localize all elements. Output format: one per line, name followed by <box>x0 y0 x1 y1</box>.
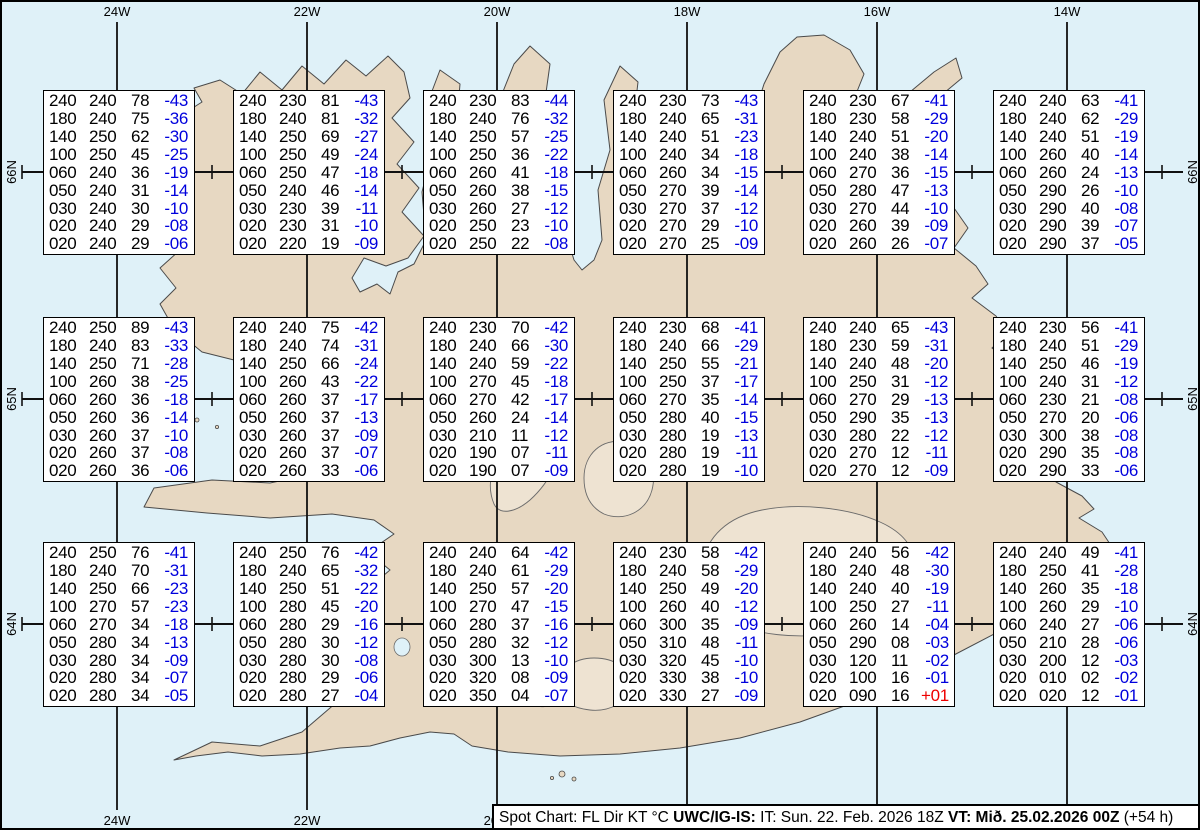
spot-cell-fl: 140 <box>619 580 659 598</box>
spot-cell-fl: 050 <box>809 409 849 427</box>
spot-cell-temp: -09 <box>921 462 948 480</box>
spot-row: 03032045-10 <box>619 651 758 669</box>
spot-cell-fl: 180 <box>429 562 469 580</box>
lake-thingvallavatn <box>394 638 410 656</box>
spot-cell-fl: 240 <box>999 92 1039 110</box>
spot-cell-fl: 060 <box>619 616 659 634</box>
spot-cell-fl: 140 <box>999 580 1039 598</box>
spot-cell-dir: 230 <box>849 110 891 128</box>
spot-box: 24024075-4218024074-3114025066-241002604… <box>233 317 385 482</box>
spot-cell-temp: -41 <box>1111 92 1138 110</box>
lat-label-left: 65N <box>5 387 19 411</box>
spot-cell-temp: -11 <box>731 444 758 462</box>
spot-cell-dir: 280 <box>279 687 321 705</box>
spot-cell-kt: 62 <box>131 128 161 146</box>
spot-cell-fl: 060 <box>49 616 89 634</box>
spot-cell-fl: 030 <box>49 427 89 445</box>
spot-cell-dir: 260 <box>1039 164 1081 182</box>
spot-cell-kt: 68 <box>701 319 731 337</box>
spot-cell-dir: 330 <box>659 669 701 687</box>
spot-cell-fl: 100 <box>239 598 279 616</box>
spot-cell-fl: 180 <box>809 562 849 580</box>
spot-cell-temp: -12 <box>731 598 758 616</box>
spot-cell-fl: 030 <box>49 652 89 670</box>
spot-cell-fl: 020 <box>239 687 279 705</box>
spot-cell-fl: 100 <box>619 146 659 164</box>
spot-box: 24023081-4318024081-3214025069-271002504… <box>233 90 385 255</box>
spot-cell-kt: 29 <box>131 217 161 235</box>
spot-cell-dir: 260 <box>279 373 321 391</box>
spot-cell-kt: 36 <box>131 391 161 409</box>
spot-cell-dir: 240 <box>89 337 131 355</box>
spot-cell-temp: -16 <box>541 616 568 634</box>
spot-cell-dir: 010 <box>1039 669 1081 687</box>
spot-row: 10026040-12 <box>619 598 758 616</box>
spot-cell-kt: 19 <box>321 235 351 253</box>
spot-cell-kt: 40 <box>1081 200 1111 218</box>
spot-cell-kt: 35 <box>1081 444 1111 462</box>
spot-cell-kt: 12 <box>891 444 921 462</box>
spot-cell-kt: 49 <box>1081 544 1111 562</box>
spot-cell-fl: 030 <box>999 200 1039 218</box>
spot-cell-dir: 290 <box>849 634 891 652</box>
spot-row: 14025051-22 <box>239 580 378 598</box>
spot-cell-dir: 270 <box>469 391 511 409</box>
spot-row: 02035004-07 <box>429 687 568 705</box>
spot-cell-kt: 08 <box>891 634 921 652</box>
spot-row: 18024074-31 <box>239 337 378 355</box>
spot-row: 05024046-14 <box>239 181 378 199</box>
spot-cell-fl: 180 <box>239 110 279 128</box>
spot-cell-fl: 240 <box>49 544 89 562</box>
spot-cell-temp: -14 <box>351 182 378 200</box>
spot-cell-dir: 260 <box>279 444 321 462</box>
spot-cell-kt: 12 <box>891 462 921 480</box>
spot-cell-fl: 180 <box>999 562 1039 580</box>
spot-cell-fl: 060 <box>429 164 469 182</box>
spot-cell-dir: 250 <box>849 598 891 616</box>
spot-row: 18024083-33 <box>49 337 188 355</box>
spot-row: 02029035-08 <box>999 444 1138 462</box>
spot-cell-fl: 140 <box>619 355 659 373</box>
spot-row: 14025046-19 <box>999 355 1138 373</box>
spot-cell-kt: 37 <box>321 391 351 409</box>
spot-cell-dir: 280 <box>279 616 321 634</box>
spot-cell-temp: -09 <box>541 669 568 687</box>
spot-cell-kt: 66 <box>701 337 731 355</box>
spot-cell-dir: 250 <box>469 146 511 164</box>
island <box>195 418 199 422</box>
spot-cell-fl: 050 <box>49 182 89 200</box>
spot-cell-dir: 260 <box>469 182 511 200</box>
spot-cell-fl: 030 <box>429 652 469 670</box>
spot-cell-temp: -02 <box>1111 669 1138 687</box>
spot-cell-kt: 43 <box>321 373 351 391</box>
spot-row: 10027057-23 <box>49 598 188 616</box>
lat-label-right: 66N <box>1186 160 1200 184</box>
spot-cell-temp: -42 <box>351 319 378 337</box>
spot-box: 24025089-4318024083-3314025071-281002603… <box>43 317 195 482</box>
spot-chart-page: 24W22W20W18W16W14W24W22W20W66N65N64N66N6… <box>0 0 1200 830</box>
spot-cell-dir: 240 <box>1039 544 1081 562</box>
spot-cell-fl: 140 <box>429 355 469 373</box>
spot-cell-kt: 65 <box>321 562 351 580</box>
spot-row: 18024051-29 <box>999 337 1138 355</box>
spot-cell-kt: 36 <box>131 164 161 182</box>
spot-row: 24024075-42 <box>239 319 378 337</box>
spot-cell-kt: 67 <box>891 92 921 110</box>
spot-cell-temp: -29 <box>1111 337 1138 355</box>
spot-cell-kt: 04 <box>511 687 541 705</box>
spot-cell-kt: 37 <box>701 373 731 391</box>
spot-cell-fl: 050 <box>809 634 849 652</box>
spot-cell-dir: 260 <box>89 427 131 445</box>
spot-row: 06027042-17 <box>429 391 568 409</box>
spot-row: 05026036-14 <box>49 408 188 426</box>
spot-cell-dir: 280 <box>279 598 321 616</box>
spot-row: 18024065-32 <box>239 562 378 580</box>
spot-cell-kt: 51 <box>1081 128 1111 146</box>
spot-cell-kt: 11 <box>891 652 921 670</box>
spot-box: 24023083-4418024076-3214025057-251002503… <box>423 90 575 255</box>
spot-cell-fl: 030 <box>239 427 279 445</box>
spot-cell-kt: 16 <box>891 687 921 705</box>
spot-cell-temp: -13 <box>1111 164 1138 182</box>
spot-cell-fl: 140 <box>239 580 279 598</box>
spot-row: 06028029-16 <box>239 616 378 634</box>
spot-cell-temp: -42 <box>541 544 568 562</box>
spot-cell-dir: 260 <box>469 164 511 182</box>
spot-row: 24023083-44 <box>429 92 568 110</box>
spot-cell-dir: 330 <box>659 687 701 705</box>
spot-cell-fl: 240 <box>239 544 279 562</box>
spot-cell-kt: 19 <box>701 462 731 480</box>
spot-cell-temp: -09 <box>541 462 568 480</box>
spot-cell-temp: -29 <box>1111 110 1138 128</box>
spot-box: 24024064-4218024061-2914025057-201002704… <box>423 542 575 707</box>
spot-row: 03020012-03 <box>999 651 1138 669</box>
spot-row: 18024066-30 <box>429 337 568 355</box>
spot-cell-dir: 240 <box>659 146 701 164</box>
spot-cell-kt: 45 <box>511 373 541 391</box>
spot-cell-dir: 240 <box>89 182 131 200</box>
spot-cell-temp: -07 <box>351 444 378 462</box>
spot-cell-kt: 33 <box>321 462 351 480</box>
spot-cell-temp: -11 <box>921 444 948 462</box>
spot-row: 24023067-41 <box>809 92 948 110</box>
spot-cell-temp: -18 <box>351 164 378 182</box>
spot-cell-fl: 020 <box>809 669 849 687</box>
spot-cell-temp: -24 <box>351 355 378 373</box>
spot-cell-dir: 230 <box>849 92 891 110</box>
spot-cell-temp: -12 <box>921 427 948 445</box>
spot-cell-kt: 27 <box>321 687 351 705</box>
spot-cell-kt: 47 <box>511 598 541 616</box>
spot-cell-dir: 320 <box>469 669 511 687</box>
spot-cell-kt: 73 <box>701 92 731 110</box>
spot-cell-fl: 240 <box>429 92 469 110</box>
spot-cell-dir: 230 <box>659 544 701 562</box>
spot-cell-kt: 35 <box>701 391 731 409</box>
spot-cell-kt: 57 <box>511 580 541 598</box>
spot-cell-kt: 46 <box>1081 355 1111 373</box>
spot-cell-kt: 81 <box>321 92 351 110</box>
spot-cell-kt: 38 <box>701 669 731 687</box>
spot-row: 18024062-29 <box>999 110 1138 128</box>
spot-cell-fl: 060 <box>999 391 1039 409</box>
spot-cell-fl: 100 <box>619 598 659 616</box>
spot-cell-dir: 260 <box>89 391 131 409</box>
spot-row: 02025023-10 <box>429 217 568 235</box>
spot-cell-dir: 270 <box>659 182 701 200</box>
lat-label-right: 64N <box>1186 612 1200 636</box>
spot-cell-temp: -10 <box>161 427 188 445</box>
spot-cell-kt: 39 <box>321 200 351 218</box>
spot-cell-fl: 100 <box>49 598 89 616</box>
spot-row: 24023073-43 <box>619 92 758 110</box>
spot-cell-temp: -10 <box>541 652 568 670</box>
spot-cell-fl: 240 <box>809 544 849 562</box>
spot-cell-kt: 31 <box>891 373 921 391</box>
spot-cell-dir: 260 <box>469 200 511 218</box>
spot-cell-temp: -07 <box>541 687 568 705</box>
spot-row: 14025071-28 <box>49 355 188 373</box>
spot-cell-kt: 07 <box>511 444 541 462</box>
spot-box: 24024056-4218024048-3014024040-191002502… <box>803 542 955 707</box>
spot-cell-dir: 320 <box>659 652 701 670</box>
spot-cell-dir: 250 <box>279 355 321 373</box>
spot-cell-kt: 36 <box>891 164 921 182</box>
spot-row: 24023058-42 <box>619 544 758 562</box>
status-title: Spot Chart: FL Dir KT °C <box>499 809 673 827</box>
lat-label-left: 66N <box>5 160 19 184</box>
spot-cell-dir: 240 <box>279 337 321 355</box>
spot-cell-temp: -44 <box>541 92 568 110</box>
spot-cell-dir: 250 <box>89 128 131 146</box>
spot-cell-temp: -11 <box>921 598 949 616</box>
spot-cell-temp: -08 <box>1111 200 1138 218</box>
spot-cell-kt: 39 <box>701 182 731 200</box>
spot-cell-dir: 250 <box>659 373 701 391</box>
spot-cell-dir: 290 <box>1039 200 1081 218</box>
spot-row: 24024064-42 <box>429 544 568 562</box>
spot-cell-kt: 29 <box>891 391 921 409</box>
spot-cell-temp: -04 <box>921 616 949 634</box>
spot-row: 02033027-09 <box>619 687 758 705</box>
spot-row: 10026043-22 <box>239 373 378 391</box>
spot-cell-dir: 240 <box>849 128 891 146</box>
spot-cell-temp: -12 <box>541 634 568 652</box>
spot-cell-kt: 31 <box>1081 373 1111 391</box>
spot-cell-fl: 030 <box>809 200 849 218</box>
spot-cell-temp: -06 <box>1111 409 1138 427</box>
spot-cell-dir: 280 <box>849 182 891 200</box>
spot-cell-fl: 020 <box>49 217 89 235</box>
spot-row: 02027029-10 <box>619 217 758 235</box>
spot-cell-temp: -42 <box>731 544 758 562</box>
spot-cell-kt: 69 <box>321 128 351 146</box>
spot-cell-fl: 020 <box>619 444 659 462</box>
spot-cell-dir: 270 <box>849 164 891 182</box>
spot-row: 02024029-06 <box>49 235 188 253</box>
spot-cell-fl: 020 <box>49 669 89 687</box>
spot-cell-dir: 250 <box>469 217 511 235</box>
spot-cell-fl: 020 <box>999 687 1039 705</box>
spot-cell-dir: 280 <box>659 427 701 445</box>
status-valid-time: VT: Mið. 25.02.2026 00Z <box>948 809 1119 827</box>
spot-row: 14025057-25 <box>429 128 568 146</box>
spot-cell-temp: -06 <box>351 669 378 687</box>
spot-cell-dir: 240 <box>89 164 131 182</box>
spot-row: 02026026-07 <box>809 235 948 253</box>
spot-cell-fl: 140 <box>809 355 849 373</box>
spot-cell-temp: -31 <box>161 562 188 580</box>
spot-cell-kt: 32 <box>511 634 541 652</box>
spot-cell-temp: -14 <box>731 182 758 200</box>
spot-cell-temp: -16 <box>351 616 378 634</box>
spot-row: 10026040-14 <box>999 146 1138 164</box>
spot-cell-fl: 020 <box>429 235 469 253</box>
spot-cell-temp: -28 <box>161 355 188 373</box>
spot-row: 05026037-13 <box>239 408 378 426</box>
spot-cell-fl: 050 <box>239 634 279 652</box>
spot-cell-fl: 030 <box>809 427 849 445</box>
spot-cell-dir: 300 <box>1039 427 1081 445</box>
spot-cell-dir: 190 <box>469 462 511 480</box>
spot-cell-temp: -03 <box>921 634 949 652</box>
spot-cell-kt: 65 <box>891 319 921 337</box>
spot-cell-temp: -18 <box>541 164 568 182</box>
spot-cell-fl: 030 <box>619 427 659 445</box>
spot-row: 10024034-18 <box>619 146 758 164</box>
spot-row: 03028019-13 <box>619 426 758 444</box>
spot-cell-temp: -10 <box>541 217 568 235</box>
spot-row: 18023058-29 <box>809 110 948 128</box>
spot-cell-temp: -30 <box>161 128 188 146</box>
spot-cell-dir: 240 <box>1039 92 1081 110</box>
spot-cell-temp: -12 <box>921 373 948 391</box>
spot-cell-dir: 100 <box>849 669 891 687</box>
spot-cell-kt: 30 <box>321 634 351 652</box>
spot-cell-kt: 40 <box>1081 146 1111 164</box>
spot-row: 03027044-10 <box>809 199 948 217</box>
spot-cell-kt: 48 <box>701 634 731 652</box>
spot-row: 05026024-14 <box>429 408 568 426</box>
spot-cell-dir: 230 <box>659 319 701 337</box>
spot-row: 03026027-12 <box>429 199 568 217</box>
spot-cell-temp: -30 <box>921 562 949 580</box>
spot-cell-temp: -13 <box>921 182 948 200</box>
spot-cell-dir: 240 <box>849 562 891 580</box>
spot-cell-fl: 140 <box>999 355 1039 373</box>
spot-box: 24024078-4318024075-3614025062-301002504… <box>43 90 195 255</box>
spot-row: 02028034-07 <box>49 669 188 687</box>
spot-cell-temp: -31 <box>351 337 378 355</box>
spot-row: 03028022-12 <box>809 426 948 444</box>
spot-cell-dir: 280 <box>279 669 321 687</box>
spot-cell-temp: -22 <box>541 355 568 373</box>
island <box>559 771 565 777</box>
spot-cell-kt: 56 <box>1081 319 1111 337</box>
spot-cell-dir: 250 <box>89 146 131 164</box>
spot-row: 14024051-19 <box>999 128 1138 146</box>
spot-cell-kt: 19 <box>701 427 731 445</box>
spot-cell-fl: 100 <box>239 146 279 164</box>
status-bar: Spot Chart: FL Dir KT °C UWC/IG-IS: IT: … <box>492 804 1200 830</box>
spot-cell-kt: 51 <box>321 580 351 598</box>
spot-cell-dir: 210 <box>1039 634 1081 652</box>
spot-cell-fl: 060 <box>999 164 1039 182</box>
spot-cell-fl: 020 <box>239 669 279 687</box>
spot-cell-kt: 36 <box>131 462 161 480</box>
spot-cell-kt: 28 <box>1081 634 1111 652</box>
spot-cell-temp: -01 <box>1111 687 1138 705</box>
spot-cell-temp: -07 <box>1111 217 1138 235</box>
spot-cell-dir: 260 <box>469 409 511 427</box>
spot-cell-dir: 240 <box>1039 616 1081 634</box>
spot-cell-temp: -19 <box>921 580 949 598</box>
spot-cell-dir: 290 <box>1039 182 1081 200</box>
spot-cell-kt: 71 <box>131 355 161 373</box>
spot-cell-temp: -32 <box>541 110 568 128</box>
spot-cell-fl: 240 <box>809 92 849 110</box>
spot-cell-fl: 140 <box>429 128 469 146</box>
spot-cell-kt: 11 <box>511 427 541 445</box>
spot-cell-dir: 260 <box>659 598 701 616</box>
spot-row: 18024048-30 <box>809 562 949 580</box>
spot-cell-dir: 230 <box>469 319 511 337</box>
spot-row: 14025066-23 <box>49 580 188 598</box>
spot-cell-kt: 45 <box>131 146 161 164</box>
spot-cell-fl: 020 <box>619 669 659 687</box>
spot-cell-dir: 210 <box>469 427 511 445</box>
spot-row: 24024078-43 <box>49 92 188 110</box>
spot-cell-dir: 230 <box>1039 391 1081 409</box>
spot-cell-kt: 49 <box>701 580 731 598</box>
spot-cell-kt: 31 <box>131 182 161 200</box>
spot-row: 02028027-04 <box>239 687 378 705</box>
spot-cell-dir: 270 <box>849 444 891 462</box>
spot-cell-kt: 58 <box>891 110 921 128</box>
spot-cell-temp: -43 <box>161 92 188 110</box>
spot-cell-fl: 100 <box>809 598 849 616</box>
spot-cell-temp: -31 <box>731 110 758 128</box>
spot-row: 05021028-06 <box>999 633 1138 651</box>
spot-cell-temp: -05 <box>1111 235 1138 253</box>
spot-row: 24025089-43 <box>49 319 188 337</box>
spot-cell-fl: 030 <box>809 652 849 670</box>
spot-cell-kt: 16 <box>891 669 921 687</box>
spot-cell-dir: 250 <box>279 128 321 146</box>
spot-cell-dir: 120 <box>849 652 891 670</box>
spot-cell-fl: 030 <box>999 427 1039 445</box>
spot-cell-kt: 24 <box>511 409 541 427</box>
spot-row: 05031048-11 <box>619 633 758 651</box>
spot-cell-kt: 29 <box>701 217 731 235</box>
spot-cell-fl: 240 <box>809 319 849 337</box>
spot-cell-kt: 38 <box>511 182 541 200</box>
spot-row: 02024029-08 <box>49 217 188 235</box>
spot-row: 06027036-15 <box>809 164 948 182</box>
spot-cell-kt: 66 <box>511 337 541 355</box>
spot-cell-fl: 030 <box>999 652 1039 670</box>
spot-cell-temp: -09 <box>351 427 378 445</box>
spot-cell-dir: 240 <box>89 110 131 128</box>
spot-row: 03028030-08 <box>239 651 378 669</box>
spot-cell-temp: -14 <box>541 409 568 427</box>
spot-cell-fl: 060 <box>619 391 659 409</box>
spot-cell-dir: 300 <box>469 652 511 670</box>
